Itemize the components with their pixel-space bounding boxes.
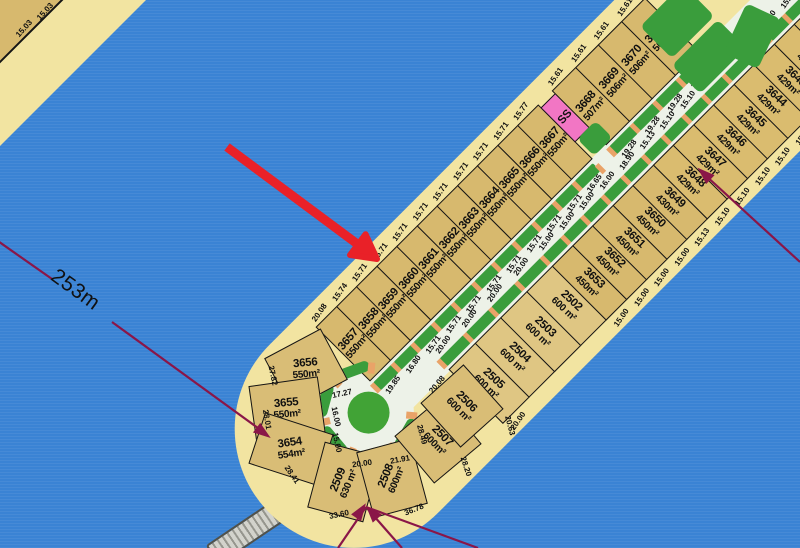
roundabout-tick (368, 362, 376, 374)
scale-label: 253m (46, 264, 104, 315)
plot-label: 2509630 m² (328, 464, 360, 500)
plot-label: 3654554m² (276, 436, 306, 462)
cadastral-map: 15.0315.03 3657550m²20.0819.853658550m²1… (0, 0, 800, 548)
plot-label: 2506600 m² (444, 388, 481, 425)
corner-island: 15.0315.03 (0, 0, 150, 150)
plot-label: 2508600m² (377, 461, 408, 495)
plot-area: 554m² (277, 448, 306, 462)
pointer-arrow (227, 147, 377, 259)
